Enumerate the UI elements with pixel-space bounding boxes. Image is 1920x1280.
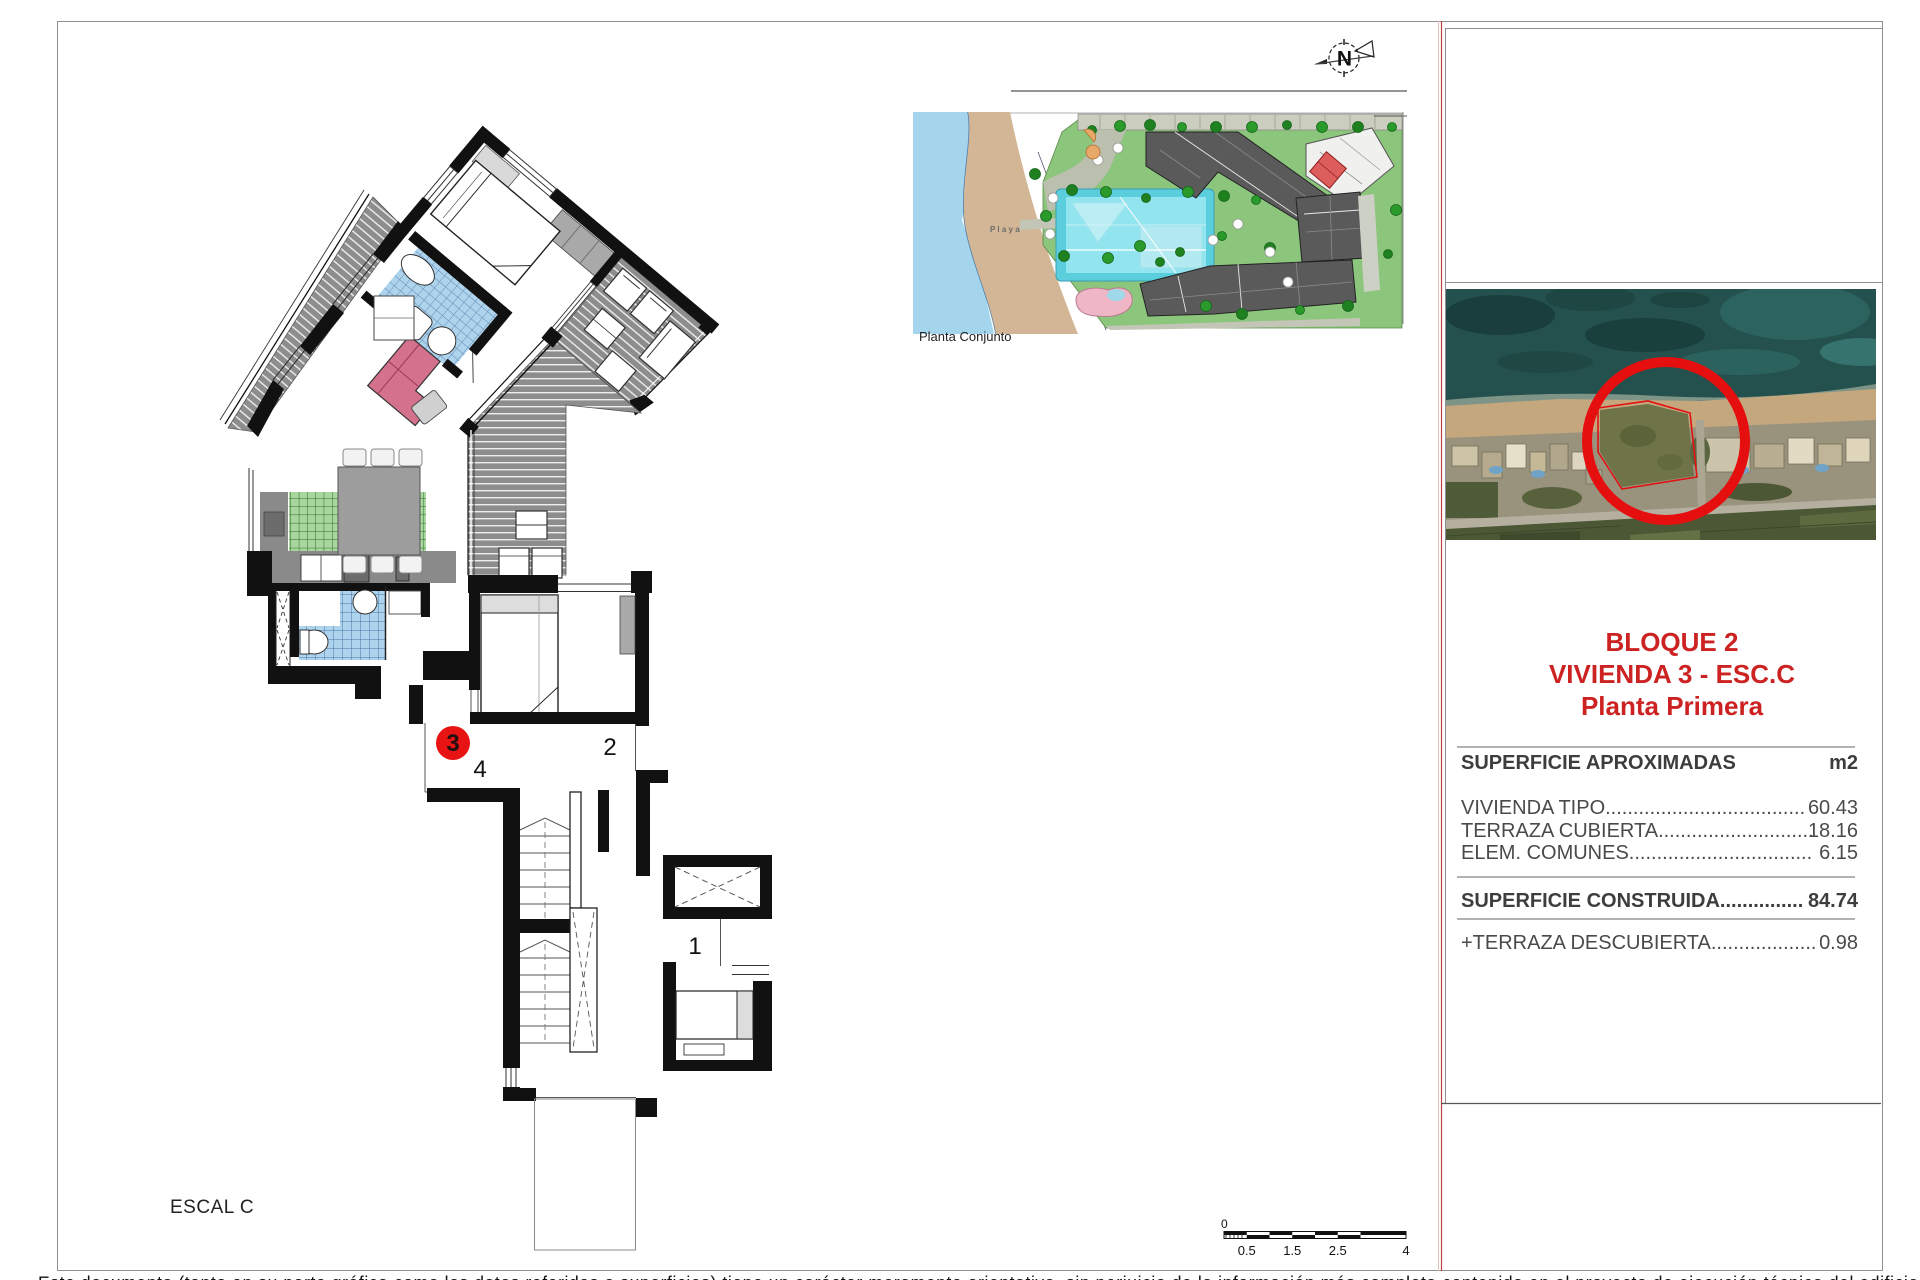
svg-text:84.74: 84.74: [1808, 890, 1859, 912]
svg-text:1.5: 1.5: [1283, 1243, 1301, 1258]
svg-text:ESCAL C: ESCAL C: [170, 1197, 254, 1218]
svg-text:Planta Conjunto: Planta Conjunto: [919, 329, 1012, 344]
svg-text:m2: m2: [1829, 752, 1858, 774]
svg-text:6.15: 6.15: [1819, 842, 1858, 864]
svg-text:2.5: 2.5: [1329, 1243, 1347, 1258]
svg-text:Este documento (tanto en su pa: Este documento (tanto en su parte gráfic…: [38, 1273, 1920, 1280]
svg-text:BLOQUE 2: BLOQUE 2: [1606, 627, 1739, 657]
svg-text:4: 4: [473, 756, 486, 783]
svg-text:4: 4: [1402, 1243, 1409, 1258]
svg-text:VIVIENDA 3 - ESC.C: VIVIENDA 3 - ESC.C: [1549, 659, 1795, 689]
svg-text:VIVIENDA TIPO.................: VIVIENDA TIPO...........................…: [1461, 797, 1805, 819]
svg-text:P l a y a: P l a y a: [990, 225, 1020, 234]
svg-text:2: 2: [603, 734, 616, 761]
svg-text:18.16: 18.16: [1808, 820, 1858, 842]
svg-text:1: 1: [688, 933, 701, 960]
svg-text:TERRAZA CUBIERTA..............: TERRAZA CUBIERTA........................…: [1461, 820, 1814, 842]
svg-text:60.43: 60.43: [1808, 797, 1858, 819]
svg-text:3: 3: [446, 730, 459, 757]
svg-text:0: 0: [1221, 1217, 1228, 1231]
svg-text:Planta Primera: Planta Primera: [1581, 691, 1764, 721]
svg-text:0.5: 0.5: [1238, 1243, 1256, 1258]
svg-text:N: N: [1337, 48, 1352, 71]
svg-text:0.98: 0.98: [1819, 932, 1858, 954]
svg-text:SUPERFICIE CONSTRUIDA.........: SUPERFICIE CONSTRUIDA...............: [1461, 890, 1803, 912]
svg-text:ELEM. COMUNES.................: ELEM. COMUNES...........................…: [1461, 842, 1812, 864]
svg-text:SUPERFICIE APROXIMADAS: SUPERFICIE APROXIMADAS: [1461, 752, 1736, 774]
svg-text:+TERRAZA DESCUBIERTA..........: +TERRAZA DESCUBIERTA...................: [1461, 932, 1816, 954]
